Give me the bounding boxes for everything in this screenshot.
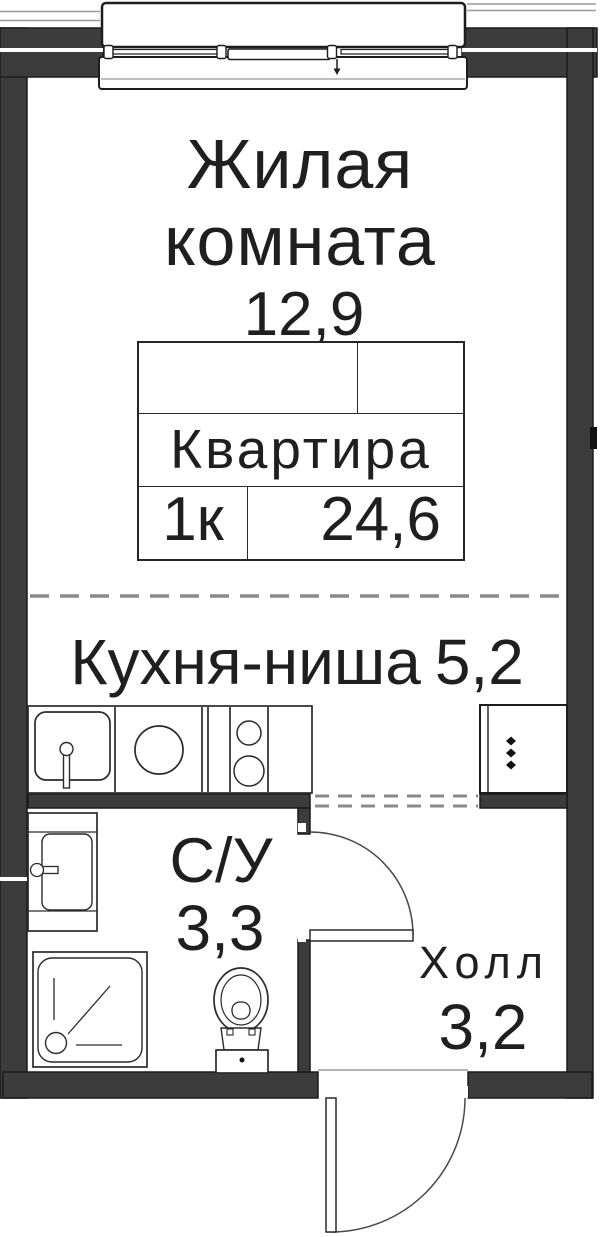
window-outer-box [102, 3, 465, 47]
shower-tray [33, 952, 147, 1067]
kitchen-tap-stem [64, 754, 70, 788]
toilet [214, 968, 268, 1073]
kitchen-tap [60, 743, 73, 756]
wall-right [567, 28, 593, 1098]
info-table-top-row [139, 343, 463, 413]
kitchen-name: Кухня-ниша [70, 626, 421, 698]
room-label-kitchen: Кухня-ниша5,2 [0, 630, 594, 694]
kitchen-counter [28, 706, 312, 793]
wall-left [0, 28, 27, 1098]
window-sill-box [99, 57, 467, 89]
wall-bottom-left [3, 1072, 318, 1098]
washbasin [28, 813, 97, 931]
wall-under-vent [480, 794, 567, 808]
info-table: Квартира 1к 24,6 [137, 341, 465, 561]
washing-machine [135, 726, 183, 774]
info-table-rooms-count: 1к [139, 487, 248, 559]
basin-tap [31, 864, 44, 877]
info-table-cell-empty-left [139, 343, 358, 413]
wall-top-left [0, 28, 103, 77]
window-casement [228, 49, 330, 60]
wall-bath-hall [298, 940, 310, 1072]
info-table-title: Квартира [139, 413, 463, 487]
room-area-bathroom: 3,3 [120, 897, 320, 959]
entrance-door-leaf [326, 1098, 336, 1232]
stove-burner-small [237, 721, 261, 745]
info-table-cell-empty-right [358, 343, 463, 413]
vent-shaft [480, 705, 567, 793]
wall-bottom-right [468, 1072, 592, 1098]
info-table-total-area: 24,6 [248, 487, 463, 559]
shower-drain [46, 1033, 67, 1054]
room-label-living: Жилая комната [105, 126, 495, 280]
info-table-bottom-row: 1к 24,6 [139, 487, 463, 559]
stove-burner-large [234, 756, 264, 786]
bath-door-arc [310, 832, 413, 935]
entrance-door-arc [331, 1098, 465, 1232]
basin-tap-stem [43, 867, 58, 874]
room-label-hall: Холл [384, 941, 584, 985]
bath-door-leaf [310, 930, 413, 941]
window [99, 3, 467, 89]
kitchen-area: 5,2 [435, 626, 524, 698]
room-area-living: 12,9 [104, 284, 504, 346]
vent-marks [506, 737, 516, 770]
room-label-bathroom: С/У [121, 830, 321, 892]
wall-kitchen-bath [28, 794, 310, 808]
wall-notch-right [590, 427, 597, 449]
floor-plan: Жилая комната 12,9 Квартира 1к 24,6 Кухн… [0, 0, 600, 1237]
room-area-hall: 3,2 [383, 996, 583, 1058]
